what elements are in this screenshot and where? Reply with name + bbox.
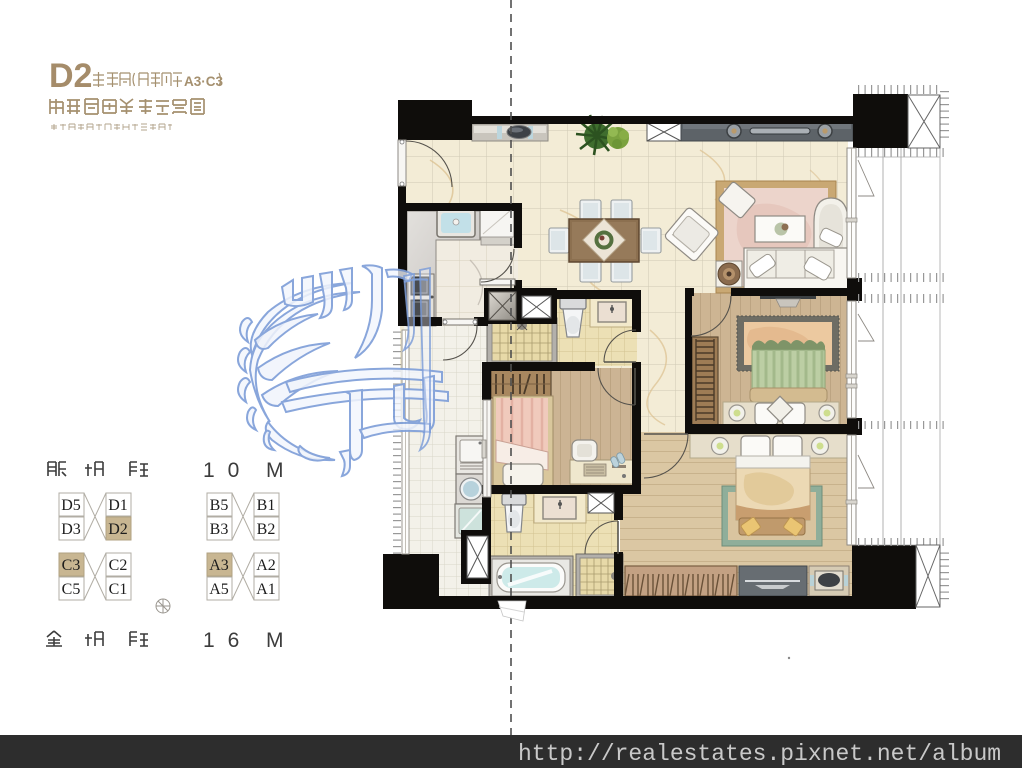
svg-text:C3: C3 [62, 557, 81, 574]
svg-text:A3·C3: A3·C3 [184, 74, 224, 89]
svg-text:C2: C2 [109, 557, 128, 574]
svg-text:C1: C1 [109, 581, 128, 598]
svg-text:B2: B2 [257, 521, 276, 538]
svg-text:D3: D3 [61, 521, 81, 538]
svg-text:B1: B1 [257, 497, 276, 514]
svg-text:A1: A1 [256, 581, 276, 598]
svg-text:C5: C5 [62, 581, 81, 598]
svg-text:A2: A2 [256, 557, 276, 574]
svg-text:16: 16 [203, 629, 252, 652]
svg-text:D2: D2 [108, 521, 128, 538]
svg-text:http://realestates.pixnet.net/: http://realestates.pixnet.net/album [518, 741, 1001, 767]
svg-text:M: M [266, 459, 284, 482]
svg-text:B3: B3 [210, 521, 229, 538]
svg-text:B5: B5 [210, 497, 229, 514]
svg-text:D2: D2 [49, 57, 92, 95]
svg-text:D1: D1 [108, 497, 128, 514]
svg-text:M: M [266, 629, 284, 652]
svg-text:10: 10 [203, 459, 252, 482]
svg-text:A5: A5 [209, 581, 229, 598]
svg-text:A3: A3 [209, 557, 229, 574]
svg-text:D5: D5 [61, 497, 81, 514]
